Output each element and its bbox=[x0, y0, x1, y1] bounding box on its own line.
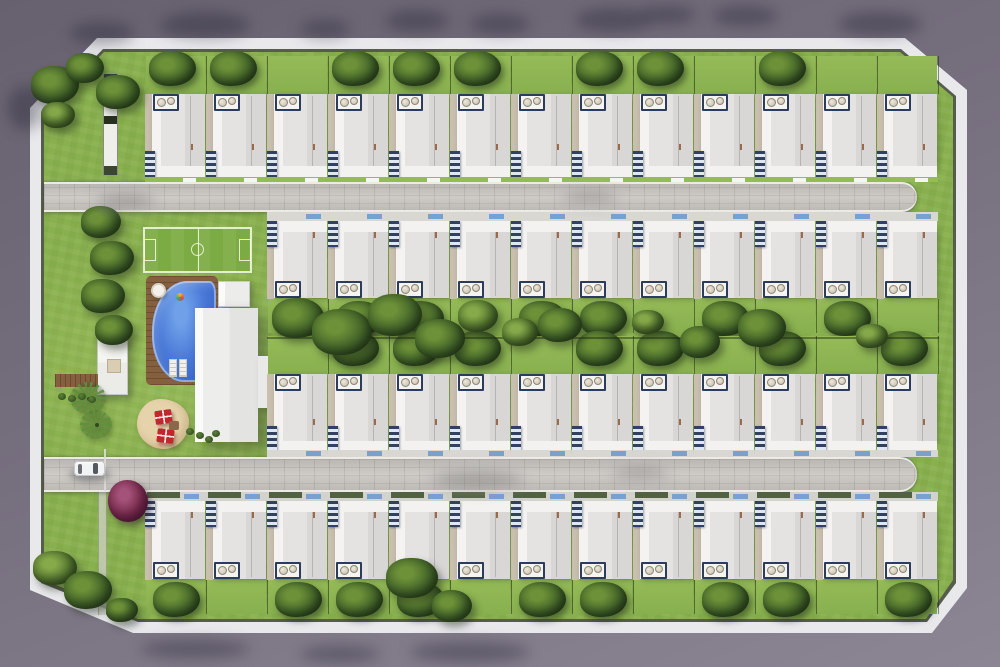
ac-unit-icon bbox=[885, 94, 911, 111]
ac-fan-icon bbox=[340, 98, 349, 107]
roof-vent-icon bbox=[740, 419, 742, 425]
front-yard bbox=[755, 492, 816, 501]
roof-ridge bbox=[190, 96, 191, 166]
front-porch bbox=[884, 166, 937, 177]
sun-lounger bbox=[169, 359, 177, 377]
pergola-louvers-icon bbox=[755, 426, 765, 452]
doormat-icon bbox=[306, 451, 321, 456]
ac-fan-icon bbox=[340, 378, 349, 387]
ac-unit-icon bbox=[824, 374, 850, 391]
front-yard bbox=[450, 177, 511, 182]
pergola-louvers-icon bbox=[328, 221, 338, 247]
cast-shadow bbox=[8, 86, 42, 130]
house-unit bbox=[267, 492, 328, 614]
ac-fan-icon bbox=[157, 98, 166, 107]
roof-vent-icon bbox=[618, 419, 620, 425]
roof-ridge bbox=[617, 96, 618, 166]
ac-unit-icon bbox=[580, 374, 606, 391]
backyard bbox=[878, 580, 937, 614]
ac-fan-icon bbox=[472, 565, 480, 573]
ac-unit-icon bbox=[702, 374, 728, 391]
ac-fan-icon bbox=[645, 378, 654, 387]
front-porch bbox=[335, 166, 388, 177]
ac-fan-icon bbox=[401, 285, 410, 294]
ac-fan-icon bbox=[777, 565, 785, 573]
ac-fan-icon bbox=[279, 566, 288, 575]
roof-vent-icon bbox=[923, 512, 925, 518]
doormat-icon bbox=[610, 178, 623, 182]
pergola-louvers-icon bbox=[694, 151, 704, 177]
roof-vent-icon bbox=[374, 512, 376, 518]
roof-ridge bbox=[678, 230, 679, 296]
house-unit bbox=[145, 56, 206, 182]
tree-icon bbox=[336, 582, 383, 617]
doormat-icon bbox=[367, 451, 382, 456]
front-yard bbox=[450, 450, 511, 457]
house-unit bbox=[816, 492, 877, 614]
pergola-louvers-icon bbox=[755, 151, 765, 177]
roof-ridge bbox=[556, 230, 557, 296]
doormat-icon bbox=[611, 494, 626, 499]
doormat-icon bbox=[244, 178, 257, 182]
pergola-louvers-icon bbox=[877, 426, 887, 452]
doormat-icon bbox=[428, 451, 443, 456]
doormat-icon bbox=[732, 178, 745, 182]
front-yard bbox=[633, 177, 694, 182]
row-north bbox=[145, 56, 938, 182]
ac-unit-icon bbox=[275, 374, 301, 391]
tree-canopy bbox=[66, 53, 104, 83]
pergola-louvers-icon bbox=[816, 221, 826, 247]
front-yard bbox=[145, 177, 206, 182]
house-unit bbox=[755, 56, 816, 182]
roof-vent-icon bbox=[313, 232, 315, 238]
ac-fan-icon bbox=[340, 566, 349, 575]
ac-fan-icon bbox=[767, 98, 776, 107]
pool-float bbox=[176, 293, 184, 301]
doormat-icon bbox=[916, 451, 931, 456]
pergola-louvers-icon bbox=[816, 501, 826, 527]
house-unit bbox=[328, 56, 389, 182]
pergola-louvers-icon bbox=[450, 221, 460, 247]
front-yard bbox=[267, 450, 328, 457]
tree-icon bbox=[149, 51, 196, 86]
roof-vent-icon bbox=[801, 419, 803, 425]
shrub-icon bbox=[88, 396, 96, 403]
roof-ridge bbox=[495, 230, 496, 296]
ac-fan-icon bbox=[645, 285, 654, 294]
roof-vent-icon bbox=[862, 419, 864, 425]
doormat-icon bbox=[672, 214, 687, 219]
roof-vent-icon bbox=[801, 144, 803, 150]
ac-unit-icon bbox=[519, 94, 545, 111]
house-unit bbox=[694, 56, 755, 182]
roof-vent-icon bbox=[557, 232, 559, 238]
roof-vent-icon bbox=[557, 144, 559, 150]
ac-fan-icon bbox=[594, 565, 602, 573]
roof-vent-icon bbox=[679, 419, 681, 425]
front-yard bbox=[755, 177, 816, 182]
front-yard bbox=[389, 177, 450, 182]
ac-fan-icon bbox=[462, 98, 471, 107]
roof-ridge bbox=[434, 376, 435, 441]
roof-ridge bbox=[312, 96, 313, 166]
roof-ridge bbox=[373, 96, 374, 166]
house-unit bbox=[633, 56, 694, 182]
tree-icon bbox=[210, 51, 257, 86]
front-porch bbox=[640, 501, 693, 512]
pergola-louvers-icon bbox=[450, 151, 460, 177]
tree-icon bbox=[759, 51, 806, 86]
front-porch bbox=[884, 221, 937, 232]
ac-fan-icon bbox=[533, 97, 541, 105]
house-unit bbox=[755, 492, 816, 614]
ac-unit-icon bbox=[580, 281, 606, 298]
house-unit bbox=[328, 492, 389, 614]
roof-vent-icon bbox=[313, 144, 315, 150]
doormat-icon bbox=[794, 451, 809, 456]
pergola-louvers-icon bbox=[633, 426, 643, 452]
roof-vent-icon bbox=[618, 232, 620, 238]
roof-vent-icon bbox=[740, 144, 742, 150]
front-porch bbox=[701, 221, 754, 232]
front-porch bbox=[335, 501, 388, 512]
ac-fan-icon bbox=[655, 97, 663, 105]
ac-fan-icon bbox=[716, 284, 724, 292]
ac-fan-icon bbox=[828, 566, 837, 575]
road-north bbox=[44, 182, 917, 212]
front-yard bbox=[267, 177, 328, 182]
front-porch bbox=[701, 166, 754, 177]
backyard bbox=[268, 580, 327, 614]
roof-ridge bbox=[922, 96, 923, 166]
roof-vent-icon bbox=[435, 144, 437, 150]
ac-unit-icon bbox=[885, 562, 911, 579]
ac-fan-icon bbox=[289, 565, 297, 573]
pergola-louvers-icon bbox=[816, 426, 826, 452]
pergola-louvers-icon bbox=[694, 501, 704, 527]
roof-vent-icon bbox=[496, 144, 498, 150]
backyard bbox=[329, 580, 388, 614]
ac-fan-icon bbox=[279, 98, 288, 107]
roof-ridge bbox=[251, 510, 252, 577]
ac-fan-icon bbox=[645, 566, 654, 575]
tree-icon bbox=[580, 582, 627, 617]
cast-shadow bbox=[95, 190, 155, 210]
backyard bbox=[512, 56, 571, 94]
front-yard bbox=[877, 450, 938, 457]
front-yard bbox=[633, 450, 694, 457]
front-porch bbox=[762, 501, 815, 512]
shrub-icon bbox=[212, 430, 220, 437]
ac-fan-icon bbox=[838, 284, 846, 292]
front-porch bbox=[518, 221, 571, 232]
backyard bbox=[695, 56, 754, 94]
ac-unit-icon bbox=[275, 281, 301, 298]
pergola-louvers-icon bbox=[755, 501, 765, 527]
backyard bbox=[756, 56, 815, 94]
cast-shadow bbox=[140, 640, 250, 658]
pergola-louvers-icon bbox=[511, 426, 521, 452]
pergola-louvers-icon bbox=[206, 151, 216, 177]
ac-fan-icon bbox=[706, 378, 715, 387]
doormat-icon bbox=[367, 214, 382, 219]
front-yard bbox=[816, 450, 877, 457]
ac-unit-icon bbox=[702, 281, 728, 298]
row-south bbox=[145, 492, 938, 614]
ac-fan-icon bbox=[584, 285, 593, 294]
front-porch bbox=[823, 166, 876, 177]
front-yard bbox=[389, 212, 450, 221]
ac-unit-icon bbox=[702, 562, 728, 579]
front-porch bbox=[213, 501, 266, 512]
backyard bbox=[329, 56, 388, 94]
ac-unit-icon bbox=[153, 562, 179, 579]
roof-vent-icon bbox=[191, 512, 193, 518]
ac-unit-icon bbox=[641, 94, 667, 111]
ac-unit-icon bbox=[580, 562, 606, 579]
roof-ridge bbox=[617, 230, 618, 296]
roof-vent-icon bbox=[923, 144, 925, 150]
ac-unit-icon bbox=[214, 562, 240, 579]
front-porch bbox=[884, 501, 937, 512]
ac-fan-icon bbox=[157, 566, 166, 575]
ac-fan-icon bbox=[594, 97, 602, 105]
front-yard bbox=[877, 177, 938, 182]
ac-fan-icon bbox=[289, 377, 297, 385]
ac-unit-icon bbox=[824, 281, 850, 298]
doormat-icon bbox=[794, 494, 809, 499]
roof-vent-icon bbox=[618, 512, 620, 518]
ac-unit-icon bbox=[458, 374, 484, 391]
roof-vent-icon bbox=[496, 419, 498, 425]
roof-vent-icon bbox=[435, 512, 437, 518]
tree-canopy bbox=[432, 590, 472, 621]
doormat-icon bbox=[855, 214, 870, 219]
roof-ridge bbox=[312, 510, 313, 577]
ac-fan-icon bbox=[777, 97, 785, 105]
pergola-louvers-icon bbox=[511, 221, 521, 247]
roof-ridge bbox=[739, 376, 740, 441]
front-porch bbox=[152, 501, 205, 512]
front-porch bbox=[457, 221, 510, 232]
ac-unit-icon bbox=[153, 94, 179, 111]
doormat-icon bbox=[611, 214, 626, 219]
doormat-icon bbox=[854, 178, 867, 182]
roof-ridge bbox=[678, 96, 679, 166]
tree-icon bbox=[637, 51, 684, 86]
front-porch bbox=[518, 501, 571, 512]
doormat-icon bbox=[915, 178, 928, 182]
clubhouse bbox=[195, 308, 258, 442]
roof-vent-icon bbox=[923, 232, 925, 238]
ac-fan-icon bbox=[401, 98, 410, 107]
shrub-icon bbox=[196, 432, 204, 439]
palm-tree-icon bbox=[80, 410, 112, 439]
roof-vent-icon bbox=[313, 419, 315, 425]
roof-vent-icon bbox=[313, 512, 315, 518]
ac-fan-icon bbox=[838, 97, 846, 105]
ac-unit-icon bbox=[641, 281, 667, 298]
backyard bbox=[390, 56, 449, 94]
field-goal-box-left-icon bbox=[144, 239, 156, 261]
ac-fan-icon bbox=[828, 98, 837, 107]
house-unit bbox=[511, 56, 572, 182]
pergola-louvers-icon bbox=[267, 426, 277, 452]
doormat-icon bbox=[489, 494, 504, 499]
roof-vent-icon bbox=[740, 232, 742, 238]
ac-unit-icon bbox=[763, 94, 789, 111]
roof-vent-icon bbox=[679, 512, 681, 518]
house-unit bbox=[145, 492, 206, 614]
pergola-louvers-icon bbox=[633, 221, 643, 247]
front-yard bbox=[267, 212, 328, 221]
pergola-louvers-icon bbox=[328, 426, 338, 452]
front-yard bbox=[816, 492, 877, 501]
shrub-icon bbox=[58, 393, 66, 400]
ac-fan-icon bbox=[899, 565, 907, 573]
backyard bbox=[451, 56, 510, 94]
ac-unit-icon bbox=[885, 281, 911, 298]
ac-fan-icon bbox=[889, 98, 898, 107]
cast-shadow bbox=[70, 22, 134, 44]
backyard bbox=[634, 580, 693, 614]
doormat-icon bbox=[428, 214, 443, 219]
doormat-icon bbox=[184, 494, 199, 499]
roof-vent-icon bbox=[801, 512, 803, 518]
ac-unit-icon bbox=[275, 94, 301, 111]
roof-vent-icon bbox=[496, 512, 498, 518]
front-yard bbox=[206, 177, 267, 182]
front-yard bbox=[633, 212, 694, 221]
ac-fan-icon bbox=[889, 285, 898, 294]
tree-icon bbox=[702, 582, 749, 617]
roof-ridge bbox=[373, 510, 374, 577]
pergola-louvers-icon bbox=[450, 426, 460, 452]
pergola-louvers-icon bbox=[877, 501, 887, 527]
roof-ridge bbox=[312, 230, 313, 296]
roof-ridge bbox=[739, 510, 740, 577]
roof-ridge bbox=[861, 96, 862, 166]
ac-fan-icon bbox=[472, 377, 480, 385]
field-goal-box-right-icon bbox=[239, 239, 251, 261]
pergola-louvers-icon bbox=[389, 426, 399, 452]
roof-vent-icon bbox=[191, 144, 193, 150]
roof-vent-icon bbox=[862, 232, 864, 238]
pergola-louvers-icon bbox=[206, 501, 216, 527]
backyard bbox=[573, 56, 632, 94]
ac-fan-icon bbox=[523, 98, 532, 107]
pergola-louvers-icon bbox=[511, 501, 521, 527]
front-porch bbox=[274, 221, 327, 232]
front-porch bbox=[335, 221, 388, 232]
house-unit bbox=[206, 492, 267, 614]
ac-fan-icon bbox=[706, 98, 715, 107]
front-yard bbox=[877, 492, 938, 501]
tree-icon bbox=[519, 582, 566, 617]
ac-fan-icon bbox=[401, 378, 410, 387]
front-porch bbox=[457, 166, 510, 177]
ac-fan-icon bbox=[279, 378, 288, 387]
ac-fan-icon bbox=[533, 565, 541, 573]
house-unit bbox=[572, 492, 633, 614]
doormat-icon bbox=[611, 451, 626, 456]
ac-fan-icon bbox=[462, 566, 471, 575]
doormat-icon bbox=[489, 214, 504, 219]
pergola-louvers-icon bbox=[633, 501, 643, 527]
ac-fan-icon bbox=[716, 97, 724, 105]
shrub-icon bbox=[205, 436, 213, 443]
roof-ridge bbox=[434, 230, 435, 296]
ac-fan-icon bbox=[523, 285, 532, 294]
house-unit bbox=[572, 56, 633, 182]
tree-canopy bbox=[81, 206, 121, 237]
ac-fan-icon bbox=[218, 98, 227, 107]
ac-fan-icon bbox=[655, 377, 663, 385]
doormat-icon bbox=[733, 214, 748, 219]
ac-unit-icon bbox=[397, 94, 423, 111]
cast-shadow bbox=[610, 464, 670, 480]
front-porch bbox=[579, 221, 632, 232]
front-porch bbox=[213, 166, 266, 177]
front-yard bbox=[389, 492, 450, 501]
roof-ridge bbox=[678, 376, 679, 441]
cast-shadow bbox=[300, 20, 350, 38]
backyard bbox=[512, 580, 571, 614]
pergola-louvers-icon bbox=[877, 221, 887, 247]
pergola-louvers-icon bbox=[389, 221, 399, 247]
front-yard bbox=[145, 492, 206, 501]
backyard bbox=[634, 56, 693, 94]
ac-fan-icon bbox=[167, 97, 175, 105]
roof-ridge bbox=[739, 96, 740, 166]
doormat-icon bbox=[733, 494, 748, 499]
tree-canopy bbox=[738, 309, 786, 346]
ac-fan-icon bbox=[828, 378, 837, 387]
doormat-icon bbox=[489, 451, 504, 456]
site-plan bbox=[0, 0, 1000, 667]
ac-unit-icon bbox=[458, 562, 484, 579]
ac-unit-icon bbox=[336, 281, 362, 298]
front-yard bbox=[694, 177, 755, 182]
front-yard bbox=[450, 492, 511, 501]
house-unit bbox=[816, 56, 877, 182]
ac-unit-icon bbox=[519, 374, 545, 391]
ac-fan-icon bbox=[350, 97, 358, 105]
front-yard bbox=[755, 212, 816, 221]
ac-unit-icon bbox=[336, 94, 362, 111]
ac-unit-icon bbox=[641, 562, 667, 579]
roof-vent-icon bbox=[862, 144, 864, 150]
backyard bbox=[146, 580, 205, 614]
front-porch bbox=[396, 166, 449, 177]
ac-fan-icon bbox=[289, 284, 297, 292]
front-porch bbox=[762, 166, 815, 177]
ac-fan-icon bbox=[584, 98, 593, 107]
roof-vent-icon bbox=[374, 419, 376, 425]
backyard bbox=[573, 580, 632, 614]
ac-unit-icon bbox=[763, 374, 789, 391]
doormat-icon bbox=[671, 178, 684, 182]
cast-shadow bbox=[838, 12, 922, 36]
cast-shadow bbox=[430, 468, 525, 490]
doormat-icon bbox=[305, 178, 318, 182]
backyard bbox=[817, 580, 876, 614]
pergola-louvers-icon bbox=[267, 221, 277, 247]
ac-unit-icon bbox=[458, 281, 484, 298]
roof-ridge bbox=[800, 376, 801, 441]
shrub-icon bbox=[78, 393, 86, 400]
